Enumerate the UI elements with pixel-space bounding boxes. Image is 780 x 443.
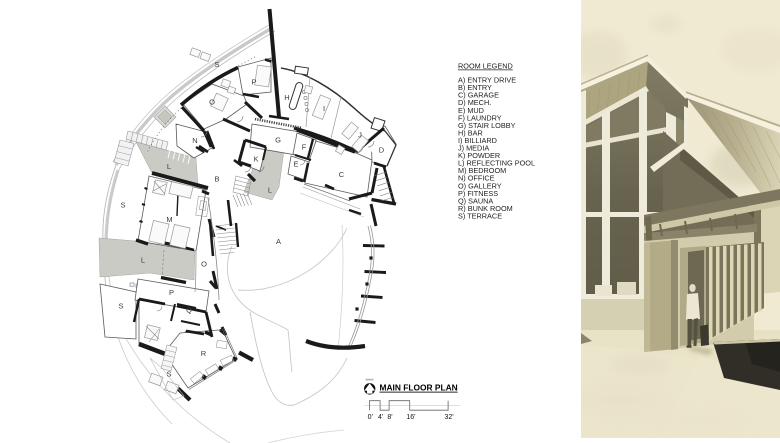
svg-text:S) TERRACE: S) TERRACE [458,212,502,221]
svg-text:N: N [192,136,197,145]
svg-text:L: L [167,162,171,171]
svg-text:I: I [323,104,325,113]
svg-text:S: S [118,302,123,311]
svg-text:A: A [276,237,281,246]
svg-text:C: C [339,170,345,179]
svg-text:M: M [166,215,172,224]
svg-text:O: O [209,98,215,107]
svg-text:0': 0' [368,414,373,421]
svg-text:P: P [251,78,256,87]
svg-text:ROOM LEGEND: ROOM LEGEND [458,62,513,71]
svg-text:S: S [120,201,125,210]
svg-text:8': 8' [387,414,392,421]
svg-text:F: F [302,143,307,152]
svg-text:R: R [201,349,207,358]
svg-text:D: D [379,146,385,155]
svg-text:S: S [166,370,171,379]
svg-text:L: L [141,256,145,265]
svg-text:G: G [275,136,281,145]
svg-text:K: K [253,155,258,164]
svg-text:H: H [284,93,289,102]
svg-text:Q: Q [186,306,192,315]
svg-text:P: P [169,288,174,297]
svg-text:S: S [214,60,219,69]
svg-text:32': 32' [444,414,453,421]
svg-text:L: L [268,186,272,195]
svg-text:B: B [214,175,219,184]
svg-text:MAIN FLOOR PLAN: MAIN FLOOR PLAN [380,383,458,393]
svg-text:4': 4' [378,414,383,421]
svg-text:16': 16' [406,414,415,421]
svg-text:J: J [358,131,362,140]
svg-text:E: E [293,160,298,169]
svg-text:O: O [201,260,207,269]
